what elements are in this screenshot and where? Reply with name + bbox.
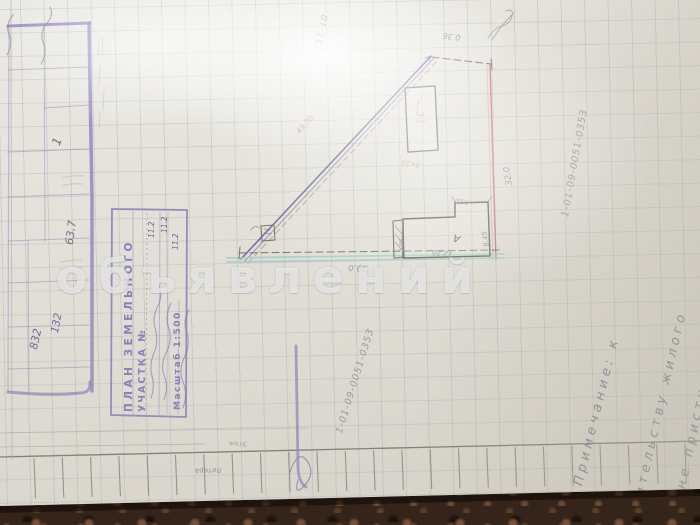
house-outline [403, 202, 490, 258]
ruler-tick [317, 452, 319, 492]
ruler-tick [204, 454, 206, 494]
stamp-divider-3 [159, 212, 160, 415]
stamp-handwritten-entries [151, 286, 189, 408]
ruler-tick [515, 447, 517, 487]
handwritten-entry-squiggle [151, 286, 161, 398]
site-watermark: объявлений [56, 250, 484, 304]
table-value-132: 132 [50, 312, 64, 334]
house-dim-ticks [452, 196, 492, 203]
graph-paper-grid [0, 0, 700, 525]
faint-printed-labels [60, 38, 104, 270]
stamp-border [111, 209, 187, 417]
bottom-center-marks [290, 346, 311, 490]
ruler-tick [176, 455, 178, 495]
plot-boundary-diagonal-blue [241, 56, 431, 259]
left-form-table [8, 23, 92, 394]
house-dim-1: 4.10 [455, 197, 471, 206]
ruler-tick [119, 456, 121, 496]
ruler-tick [34, 458, 36, 498]
illegible-print-mark [98, 38, 104, 128]
ruler-tick [600, 445, 602, 485]
dim-diagonal: 43.70 [295, 114, 315, 135]
corner-marker-marks [251, 226, 271, 234]
table-row-lines [8, 67, 89, 369]
ruler-tick [572, 446, 574, 486]
stamp-date-1: 11.2 [148, 221, 156, 238]
corner-scribbles [7, 7, 514, 64]
shed-red-marks [416, 100, 425, 122]
handwritten-entry-squiggle [163, 303, 171, 400]
ruler-tick [402, 450, 404, 490]
plot-boundary-diagonal-blue-2 [244, 58, 434, 262]
house-annex-outline [393, 220, 404, 258]
table-column-lines [28, 26, 45, 392]
ruler-tick [91, 457, 93, 497]
plot-drawing [227, 56, 504, 263]
ruler-tick [289, 452, 291, 492]
table-left-border [8, 26, 9, 392]
graph-paper-sheet: ПЛАН ЗЕМЕЛЬНОГО УЧАСТКА № Масштаб 1:500 … [0, 0, 700, 525]
ink-drawing-layer [0, 0, 700, 525]
plot-boundary-top-dashed [432, 57, 491, 64]
code-top: 0051-10 [313, 13, 331, 59]
plot-boundary-right-red-2 [487, 66, 493, 259]
ruler-tick [685, 443, 687, 483]
code-bottom: 1-01-09-0051-0353 [335, 327, 376, 434]
ruler-tick [374, 450, 376, 490]
ruler-tick [232, 454, 234, 494]
house-dim-2: 8.45 [482, 231, 491, 247]
table-top-border [8, 23, 90, 26]
stamp-divider-2 [146, 213, 147, 414]
ruler-tick [487, 448, 489, 488]
pencil-scribble-top-left-1 [7, 15, 13, 55]
dim-top: 0.36 [442, 31, 461, 41]
shed-outline [405, 86, 438, 152]
ruler-tick [628, 445, 630, 485]
plot-boundary-right-red [490, 64, 496, 259]
note-line-3: дома не приступили [663, 337, 700, 525]
top-corner-tick [491, 59, 492, 70]
plot-boundary-diagonal-red-dashed [248, 61, 437, 263]
plot-boundary-bottom-dashed [239, 250, 499, 253]
pencil-scribble-top-right [488, 10, 514, 40]
stamp-line2: УЧАСТКА № [138, 328, 148, 412]
ruler-tick [543, 447, 545, 487]
ruler-line [0, 441, 700, 457]
stamp-title: ПЛАН ЗЕМЕЛЬНОГО [124, 239, 135, 412]
annex-hatching [395, 226, 402, 250]
etazh-label: Этаж [229, 440, 247, 447]
purple-vertical-line [296, 346, 306, 487]
house-letter: А [452, 232, 461, 243]
table-right-border [89, 23, 92, 391]
pencil-line-left [0, 428, 308, 433]
table-value-1: 1 [50, 136, 64, 147]
stamp-scale-label: Масштаб 1:500 [174, 311, 183, 410]
blue-flourish [290, 457, 311, 491]
ruler-tick [345, 451, 347, 491]
note-line-2: строительству жилого [623, 310, 689, 525]
stamp-divider-5 [178, 300, 179, 414]
corner-marker-box [261, 225, 275, 241]
ruler-tick [62, 458, 64, 498]
ruler-tick [147, 456, 149, 496]
illegible-print-mark [62, 176, 84, 186]
diagonal-end-tick [425, 56, 431, 62]
ruler-ticks [34, 443, 686, 498]
ruler-tick [459, 449, 461, 489]
house-dim-3: 12.20 [432, 248, 453, 257]
ruler-tick [260, 453, 262, 493]
table-value-63-7: 63.7 [64, 220, 78, 246]
stamp-date-3: 11.2 [172, 233, 180, 250]
code-right: 1-01-09-0051-0353 [561, 108, 589, 217]
handwritten-signature-squiggle [181, 310, 189, 408]
bottom-ruler [0, 428, 700, 498]
ruler-tick [657, 444, 659, 484]
stamp-box [111, 209, 187, 417]
litera-label: Литера [195, 466, 222, 474]
note-line-1: Примечание: к [572, 335, 622, 487]
table-value-832: 832 [28, 328, 43, 351]
stamp-date-2: 11.2 [161, 216, 169, 233]
dim-right: 32.0 [503, 166, 514, 186]
photographed-land-plan-document: ПЛАН ЗЕМЕЛЬНОГО УЧАСТКА № Масштаб 1:500 … [0, 0, 700, 525]
ruler-line-faint [0, 444, 205, 447]
house-dim-4: 2.95 [399, 238, 406, 252]
street-line-teal [227, 254, 504, 262]
illegible-print-mark [60, 260, 82, 270]
table-bottom-border [8, 382, 90, 394]
bottom-left-tick [239, 247, 240, 259]
ruler-tick [430, 449, 432, 489]
stamp-divider-4 [167, 212, 168, 414]
shed-label: 3×10 [401, 158, 421, 168]
pencil-scribble-top-left-2 [41, 7, 52, 64]
dim-bottom: 39.0 [348, 262, 367, 272]
paper-fold-line [11, 0, 12, 460]
photo-lighting-overlay [0, 0, 700, 525]
paper-edge-shadow [0, 0, 700, 525]
